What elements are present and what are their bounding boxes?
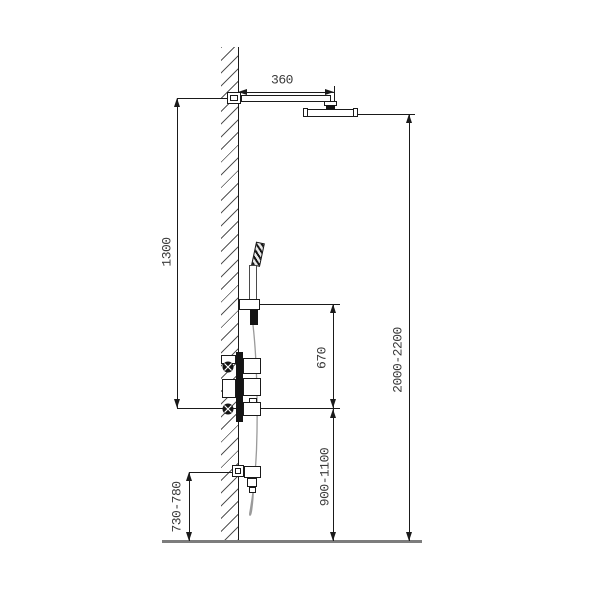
- outlet-nipple: [247, 478, 257, 487]
- valve-wall-plate: [236, 352, 243, 422]
- outlet-nipple-tip: [249, 487, 256, 493]
- valve-fittings: [0, 0, 600, 600]
- dim-label-730-780: 730-780: [170, 481, 185, 532]
- dim-label-360: 360: [271, 73, 293, 88]
- valve-inlet-top-body: [221, 355, 236, 364]
- dim-line-2000-2200: [409, 114, 410, 541]
- dim-line-1300: [177, 98, 178, 408]
- outlet-body: [244, 466, 261, 478]
- rain-head-right-cap: [353, 108, 358, 117]
- hand-shower-handle: [251, 242, 265, 267]
- dim-arrow-top-730-780: [186, 472, 192, 481]
- dim-label-900-1100: 900-1100: [318, 448, 333, 506]
- dim-line-730-780: [189, 472, 190, 541]
- dim-arrow-top-1300: [174, 98, 180, 107]
- floor-line: [162, 540, 422, 543]
- dim-arrow-bottom-2000-2200: [406, 532, 412, 541]
- rain-head-left-cap: [303, 108, 308, 117]
- dim-label-1300: 1300: [160, 237, 175, 266]
- arm-wall-flange-inner: [230, 95, 238, 101]
- dim-label-2000-2200: 2000-2200: [391, 327, 406, 393]
- valve-knob-middle: [243, 378, 261, 396]
- valve-inlet-bracket: [222, 379, 236, 398]
- valve-knob-top: [243, 358, 261, 374]
- outlet-wall-elbow-inner: [235, 468, 241, 474]
- dim-line-900-1100: [333, 408, 334, 541]
- dim-arrow-bottom-1300: [174, 399, 180, 408]
- ext-line-670-top: [260, 304, 340, 305]
- shower-hose: [0, 0, 600, 600]
- dim-line-670: [333, 304, 334, 408]
- shower-arm: [241, 95, 331, 102]
- rain-shower-head: [304, 109, 357, 117]
- dim-arrow-top-900-1100: [330, 409, 336, 418]
- dim-arrow-bottom-900-1100: [330, 532, 336, 541]
- dim-arrow-bottom-670: [330, 399, 336, 408]
- dim-line-360: [238, 92, 334, 93]
- ext-line-1300-top: [177, 98, 228, 99]
- dim-arrow-bottom-730-780: [186, 532, 192, 541]
- dim-arrow-top-2000-2200: [406, 114, 412, 123]
- dim-arrow-top-670: [330, 304, 336, 313]
- hose-connector: [250, 310, 258, 325]
- dim-label-670: 670: [315, 347, 330, 369]
- valve-knob-bottom: [243, 402, 261, 416]
- hand-shower-wand: [249, 265, 257, 302]
- technical-drawing-canvas: 360 1300 670 900-1100 2000-2200 730-780: [0, 0, 600, 600]
- ext-line-730-780-top: [189, 472, 232, 473]
- slider-holder: [239, 299, 260, 310]
